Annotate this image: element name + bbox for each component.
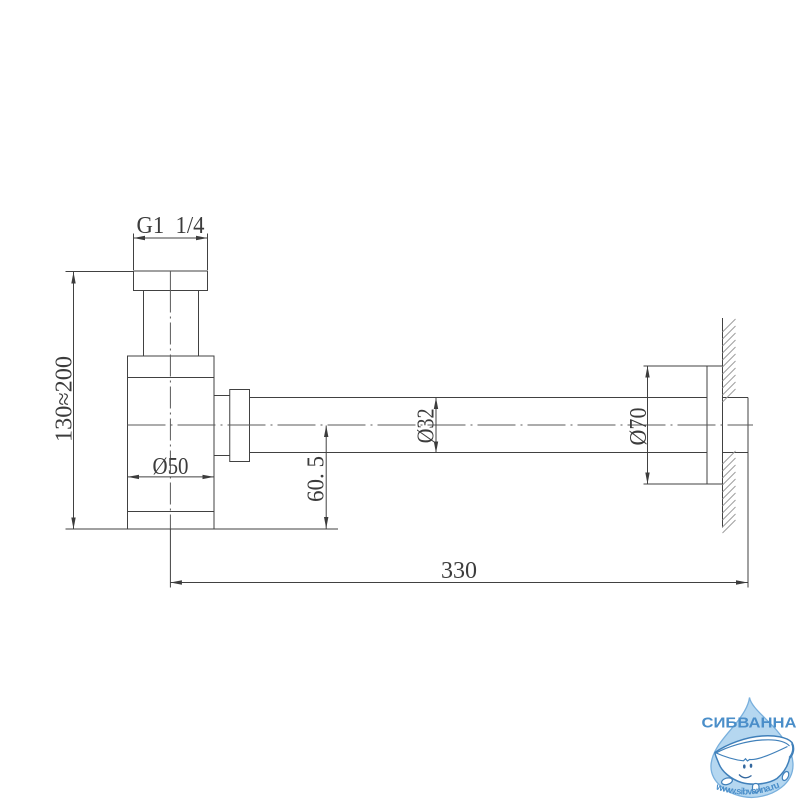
svg-text:Ø50: Ø50 <box>153 454 189 480</box>
svg-text:130≈200: 130≈200 <box>52 356 78 442</box>
svg-text:СИБВАННА: СИБВАННА <box>702 715 797 732</box>
svg-text:Ø32: Ø32 <box>414 408 440 443</box>
svg-text:Ø70: Ø70 <box>626 408 652 446</box>
svg-text:G1 1/4: G1 1/4 <box>137 213 205 239</box>
svg-text:330: 330 <box>441 558 477 584</box>
svg-text:60. 5: 60. 5 <box>304 456 330 502</box>
